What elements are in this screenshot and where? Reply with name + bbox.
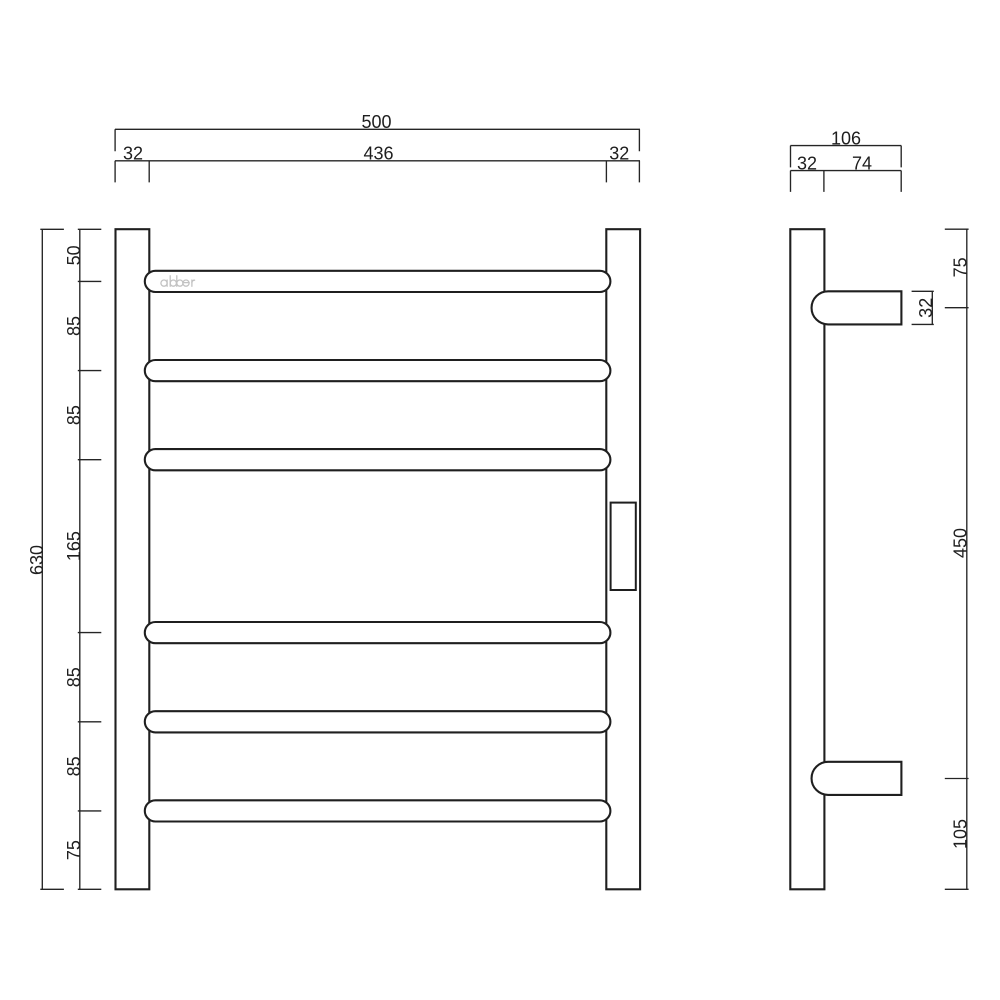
svg-text:74: 74 <box>852 153 872 173</box>
svg-text:32: 32 <box>123 144 143 164</box>
svg-text:75: 75 <box>950 257 970 277</box>
svg-text:50: 50 <box>64 245 84 265</box>
svg-text:436: 436 <box>363 144 393 164</box>
svg-text:500: 500 <box>361 112 391 132</box>
svg-text:32: 32 <box>916 298 936 318</box>
svg-text:85: 85 <box>64 667 84 687</box>
svg-text:450: 450 <box>950 528 970 558</box>
svg-text:32: 32 <box>609 144 629 164</box>
svg-text:32: 32 <box>797 153 817 173</box>
svg-text:75: 75 <box>64 840 84 860</box>
svg-text:106: 106 <box>831 128 861 148</box>
svg-text:85: 85 <box>64 316 84 336</box>
svg-text:630: 630 <box>27 545 47 575</box>
svg-text:85: 85 <box>64 756 84 776</box>
svg-text:105: 105 <box>950 819 970 849</box>
svg-text:165: 165 <box>64 531 84 561</box>
svg-text:85: 85 <box>64 405 84 425</box>
